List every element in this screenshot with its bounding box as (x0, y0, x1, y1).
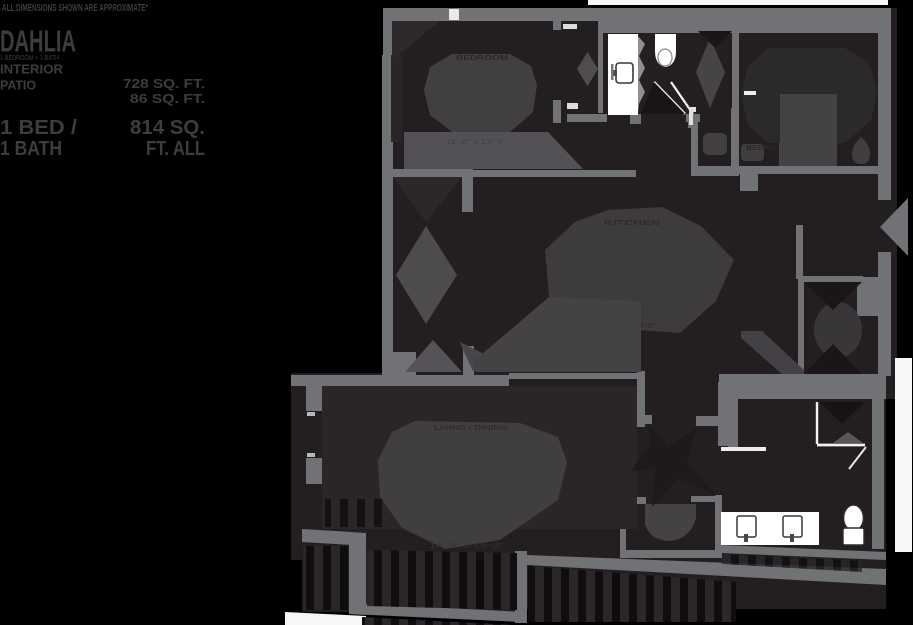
svg-text:1 BED /: 1 BED / (0, 117, 77, 139)
svg-text:KITCHEN: KITCHEN (604, 220, 660, 227)
svg-text:PATIO: PATIO (0, 79, 36, 93)
svg-text:11'-2" x 12'-4": 11'-2" x 12'-4" (446, 139, 507, 146)
svg-text:INTERIOR: INTERIOR (0, 63, 63, 77)
svg-text:86 SQ. FT.: 86 SQ. FT. (130, 92, 205, 106)
svg-text:728 SQ. FT.: 728 SQ. FT. (123, 77, 205, 91)
svg-text:LIVING / DINING: LIVING / DINING (434, 425, 509, 432)
svg-text:1 BATH: 1 BATH (0, 138, 62, 160)
svg-text:814 SQ.: 814 SQ. (130, 117, 205, 139)
svg-text:BEDROOM: BEDROOM (456, 55, 508, 62)
svg-text:FT. ALL: FT. ALL (146, 138, 205, 160)
svg-text:14'-8" x 15'-2": 14'-8" x 15'-2" (429, 543, 505, 550)
svg-text:ALL DIMENSIONS SHOWN ARE APPRO: ALL DIMENSIONS SHOWN ARE APPROXIMATE* (2, 2, 149, 14)
svg-text:1 BEDROOM + 1 BATH: 1 BEDROOM + 1 BATH (0, 53, 59, 62)
svg-text:BEDRO: BEDRO (746, 145, 777, 152)
